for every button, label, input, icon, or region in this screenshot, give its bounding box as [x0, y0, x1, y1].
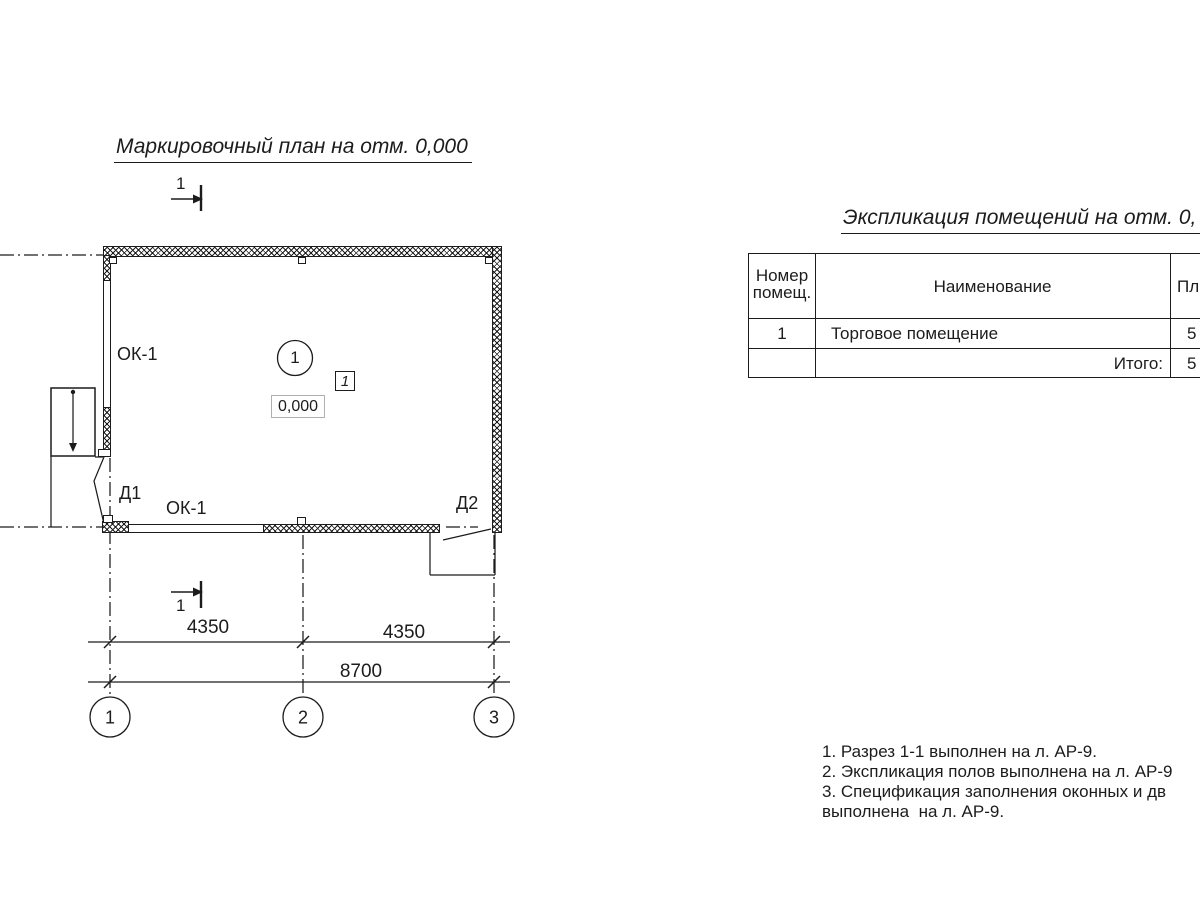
wall-post-bottom-left: [103, 515, 113, 523]
table-header-area: Пло: [1177, 277, 1200, 297]
window-ok1-bottom: [129, 524, 263, 533]
door-leaf-d1: [94, 457, 104, 524]
note-line-4: выполнена на л. АР-9.: [822, 802, 1004, 822]
wall-post-d1-jamb: [98, 449, 111, 457]
floor-type-mark-value: 1: [341, 373, 349, 390]
door-label-d2: Д2: [456, 493, 478, 514]
table-total-label: Итого:: [815, 354, 1163, 374]
note-line-1: 1. Разрез 1-1 выполнен на л. АР-9.: [822, 742, 1097, 762]
entrance-porch-left: [51, 388, 103, 527]
note-line-3: 3. Спецификация заполнения оконных и дв: [822, 782, 1166, 802]
table-total-area: 5: [1187, 354, 1196, 374]
door-leaf-d2: [443, 529, 491, 540]
wall-bottom-middle: [263, 524, 440, 533]
dimension-line-total: [88, 676, 510, 688]
window-ok1-left: [103, 281, 111, 407]
table-row1-name: Торговое помещение: [831, 324, 998, 344]
window-label-bottom: ОК-1: [166, 498, 207, 519]
table-row1-number: 1: [749, 324, 815, 344]
section-label-bottom: 1: [176, 596, 185, 616]
window-label-left: ОК-1: [117, 344, 158, 365]
dimension-seg2: 4350: [383, 622, 425, 644]
note-line-2: 2. Экспликация полов выполнена на л. АР-…: [822, 762, 1173, 782]
elevation-value: 0,000: [278, 398, 318, 416]
wall-post-top-right: [485, 257, 493, 264]
wall-post-bottom-middle: [297, 517, 306, 525]
door-label-d1: Д1: [119, 483, 141, 504]
table-header-name: Наименование: [815, 277, 1170, 297]
wall-top: [103, 246, 502, 257]
table-header-room-number: Номер помещ.: [749, 267, 815, 301]
plan-title: Маркировочный план на отм. 0,000: [114, 135, 472, 163]
dimension-seg1: 4350: [187, 617, 229, 639]
table-row1-area: 5: [1187, 324, 1196, 344]
grid-number-3: 3: [489, 708, 499, 729]
table-row-divider: [749, 348, 1200, 349]
dimension-total: 8700: [340, 661, 382, 683]
wall-left-middle: [103, 407, 111, 451]
entrance-porch-right: [430, 533, 495, 575]
explication-table: Номер помещ. Наименование Пло 1 Торговое…: [748, 253, 1200, 378]
wall-post-top-left: [109, 257, 117, 264]
floor-type-mark: 1: [335, 371, 355, 391]
stair-direction-arrow-icon: [69, 390, 77, 452]
dimension-line-segments: [88, 636, 510, 648]
room-number: 1: [290, 348, 299, 368]
elevation-mark: 0,000: [271, 395, 325, 418]
section-label-top: 1: [176, 174, 185, 194]
drawing-sheet: { "colors": { "line": "#1c1c1c", "elevat…: [0, 0, 1200, 900]
table-title: Экспликация помещений на отм. 0,: [841, 206, 1200, 234]
wall-right: [492, 246, 502, 533]
grid-number-2: 2: [298, 708, 308, 729]
table-header-divider: [749, 318, 1200, 319]
wall-post-top-middle: [298, 257, 306, 264]
grid-number-1: 1: [105, 708, 115, 729]
table-column-divider-2: [1170, 254, 1171, 377]
